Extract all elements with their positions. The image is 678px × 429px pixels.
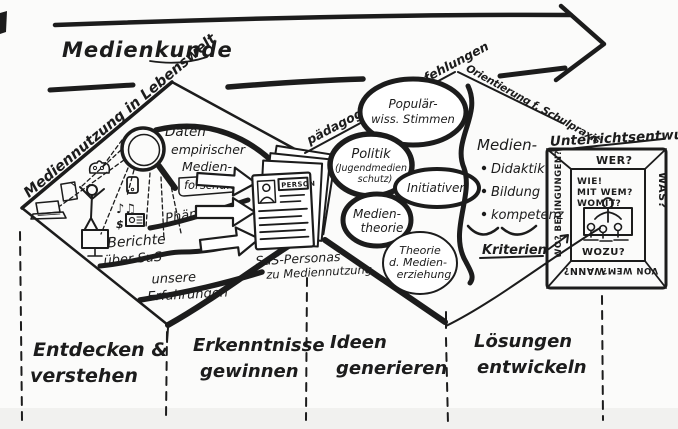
photo-edge-shadow xyxy=(0,408,678,429)
frame-word-how: WIE! xyxy=(577,177,603,187)
frame-word-what: WAS? xyxy=(656,172,669,208)
frame-word-when: WANN? xyxy=(563,265,604,276)
bubble-politics-line-1: Politik xyxy=(351,147,391,162)
phase-1-line-1: Entdecken & xyxy=(33,339,168,361)
bubble-theory-line-3: erziehung xyxy=(397,268,452,281)
synthesis-arrows xyxy=(196,165,261,260)
phase-4-line-1: Lösungen xyxy=(474,331,572,352)
bubble-popular-line-1: Populär- xyxy=(388,97,437,111)
phase-3-line-1: Ideen xyxy=(330,332,387,353)
bubble-mediatheory-line-1: Medien- xyxy=(353,207,401,221)
persona-card-front: PERSON xyxy=(252,172,319,249)
photo-corner-mark xyxy=(0,11,7,34)
research-line-2: empirischer xyxy=(171,142,246,157)
experience-line-1: unsere xyxy=(151,270,196,287)
bubble-popular-line-2: wiss. Stimmen xyxy=(371,112,455,126)
phase-3-line-2: generieren xyxy=(336,358,447,379)
bullet-dot-1 xyxy=(482,166,486,170)
frame-word-with-whom: MIT WEM? xyxy=(577,188,633,198)
divider-4 xyxy=(602,296,603,420)
criteria-heading: Medien- xyxy=(477,136,537,154)
bullet-dot-2 xyxy=(482,189,486,193)
phase-4-line-2: entwickeln xyxy=(477,357,587,378)
bubble-politics-line-2: (Jugendmedien xyxy=(335,163,407,174)
research-line-3: Medien- xyxy=(182,159,232,174)
phase-1-line-2: verstehen xyxy=(30,365,138,387)
frame-word-where: WO? BEDINGUNGEN? xyxy=(554,150,564,258)
criteria-bullet-1: Didaktik xyxy=(491,162,545,177)
frame-word-who: WER? xyxy=(596,154,633,167)
bubble-politics-line-3: schutz) xyxy=(358,174,393,185)
phase-2-line-2: gewinnen xyxy=(200,361,299,382)
criteria-bullet-2: Bildung xyxy=(491,185,540,200)
frame-word-why: WOZU? xyxy=(582,247,625,258)
sketchnote-canvas: Medienkunde Mediennutzung in Lebenswelt xyxy=(0,0,678,429)
dollar-icon: $ xyxy=(116,218,124,231)
bubble-initiatives-label: Initiativen xyxy=(407,181,467,195)
phase-2-line-1: Erkenntnisse xyxy=(193,335,325,356)
frame-word-by-whom: VON WEM? xyxy=(602,265,658,275)
bubble-mediatheory-line-2: theorie xyxy=(361,221,404,235)
bullet-dot-3 xyxy=(482,212,486,216)
double-diamond-sketch: Medienkunde Mediennutzung in Lebenswelt xyxy=(0,0,678,429)
